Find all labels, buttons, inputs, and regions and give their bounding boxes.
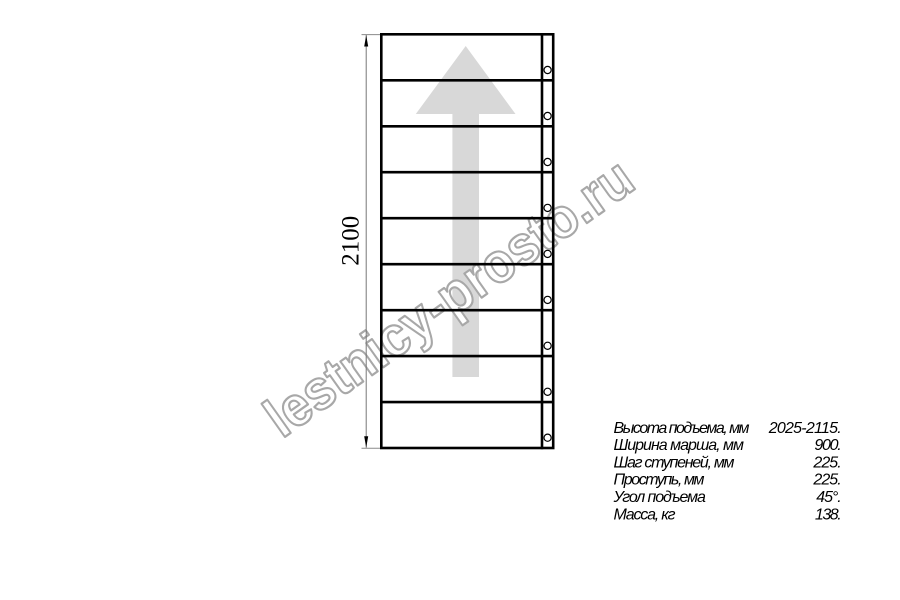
- svg-text:45°.: 45°.: [816, 489, 841, 506]
- svg-text:Масса, кг: Масса, кг: [614, 506, 676, 523]
- svg-text:Угол подъема: Угол подъема: [613, 489, 706, 506]
- svg-text:225.: 225.: [812, 472, 841, 489]
- svg-text:Шаг ступеней, мм: Шаг ступеней, мм: [614, 454, 735, 471]
- svg-text:225.: 225.: [812, 454, 841, 471]
- svg-text:Проступь, мм: Проступь, мм: [614, 472, 705, 489]
- svg-text:2025-2115.: 2025-2115.: [768, 420, 842, 437]
- svg-text:Высота подъема, мм: Высота подъема, мм: [614, 420, 750, 437]
- svg-text:Ширина марша, мм: Ширина марша, мм: [614, 437, 745, 454]
- svg-text:900.: 900.: [814, 437, 841, 454]
- svg-text:138.: 138.: [815, 506, 842, 523]
- svg-text:2100: 2100: [338, 216, 365, 266]
